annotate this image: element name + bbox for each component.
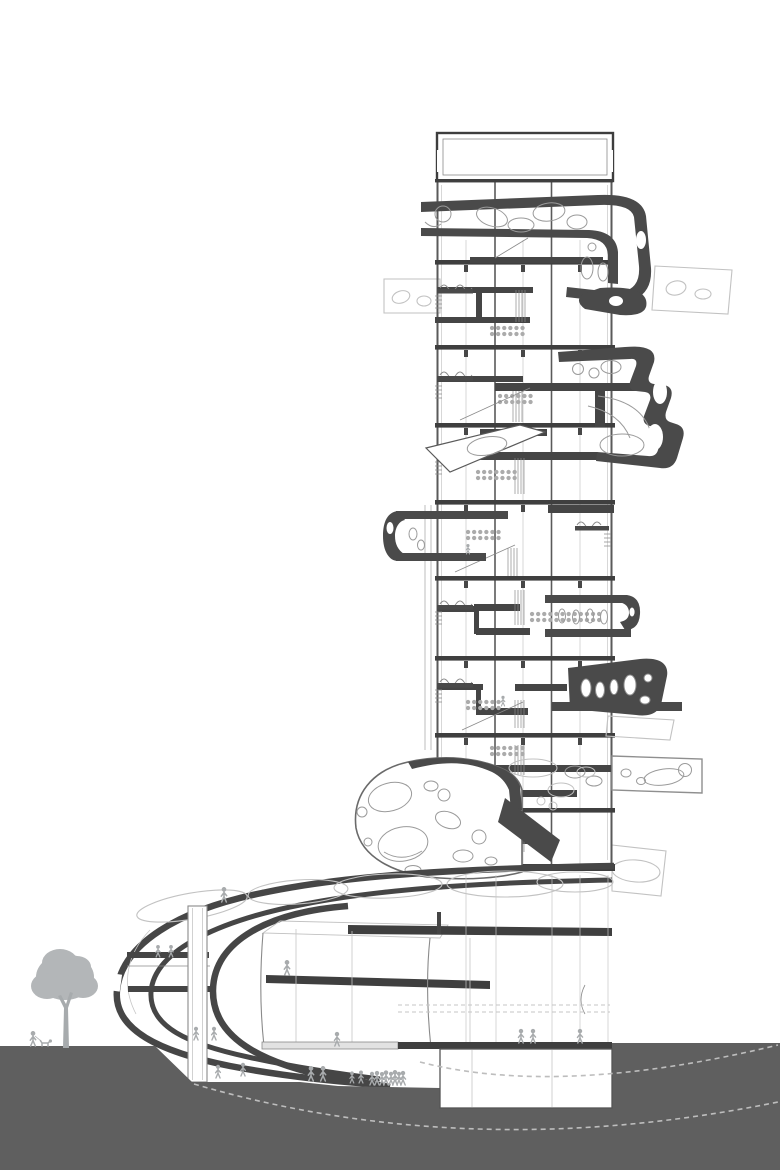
slide-curve xyxy=(581,985,585,1014)
ground-mass xyxy=(0,1043,780,1170)
basement-box xyxy=(440,1049,612,1108)
person-figure xyxy=(501,696,505,706)
architectural-section-canvas xyxy=(0,0,780,1170)
level-dashes xyxy=(398,1005,610,1012)
pod-holes xyxy=(409,528,425,550)
pod-right-large xyxy=(558,347,684,469)
person-figure xyxy=(518,1029,523,1043)
pod-right-band xyxy=(565,756,702,793)
tree-silhouette xyxy=(31,949,98,1048)
architectural-section-drawing xyxy=(0,0,780,1170)
pod-ghost-panel xyxy=(606,716,674,740)
ground-level-slab xyxy=(455,1042,612,1049)
person-figure xyxy=(216,1065,221,1078)
pod-top-tube xyxy=(421,195,651,315)
dog-figure xyxy=(40,1040,51,1046)
tower-roof-box xyxy=(437,133,613,181)
elevator-shaft xyxy=(188,906,207,1082)
ghost-band-podium-right xyxy=(612,845,666,896)
pod-left-mid xyxy=(383,511,508,561)
podium-groundfloor-lines xyxy=(466,875,608,1042)
person-figure xyxy=(284,961,289,975)
person-figure xyxy=(530,1029,535,1043)
pod-left-blob xyxy=(355,758,595,879)
podium-column-stub xyxy=(437,912,441,934)
crowd-group xyxy=(370,1071,406,1085)
person-figure xyxy=(466,544,470,554)
hall-box xyxy=(261,921,612,1049)
person-figure xyxy=(212,1027,217,1040)
ghost-rect-right-top xyxy=(652,266,732,314)
person-walking-dog xyxy=(30,1032,35,1046)
pod-holes xyxy=(425,201,608,281)
pod-right-low xyxy=(552,659,682,740)
person-figure xyxy=(241,1063,246,1076)
